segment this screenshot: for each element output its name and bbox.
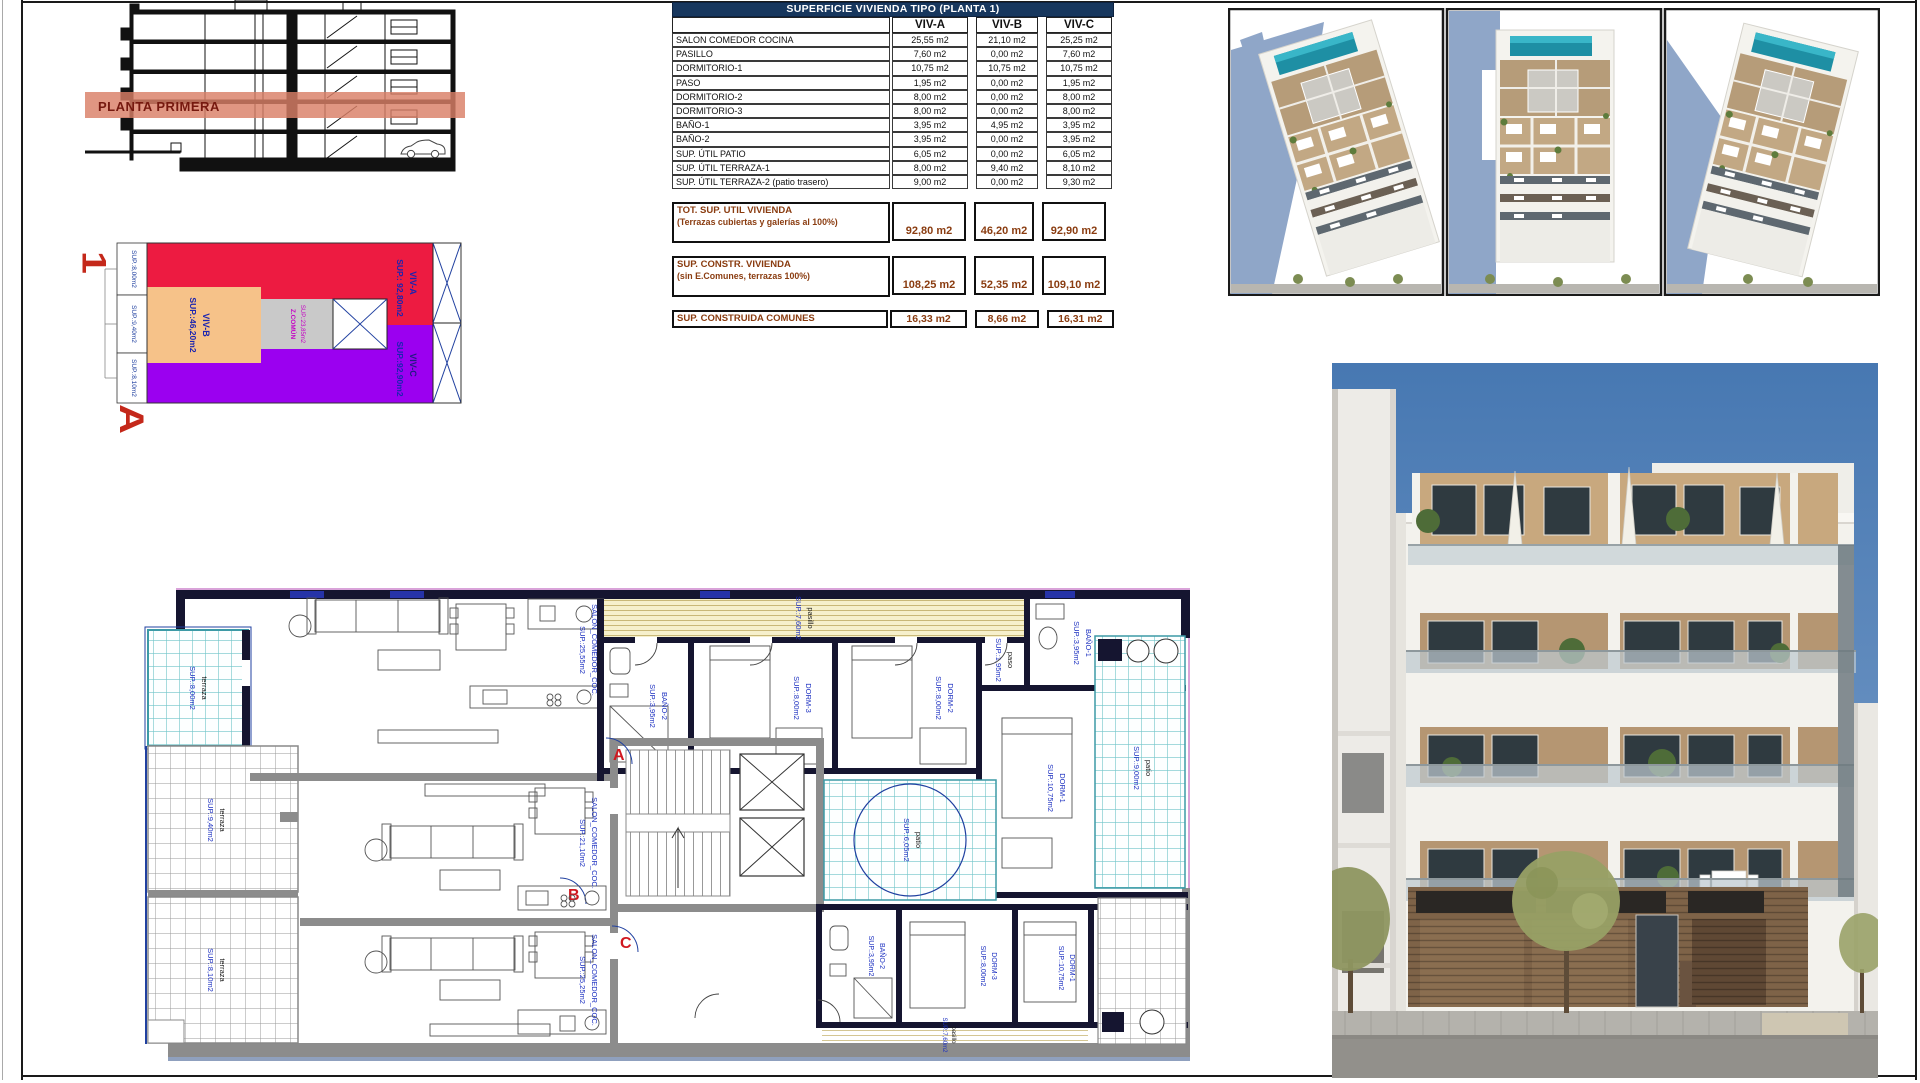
- row-label: SUP. ÚTIL TERRAZA-2 (patio trasero): [672, 175, 890, 189]
- total-constr-b: 52,35 m2: [974, 256, 1034, 295]
- pasillo-c-name: pasillo: [950, 1026, 956, 1044]
- aerial-panel-1: [1229, 9, 1443, 295]
- aerial-panel-3: [1665, 9, 1879, 295]
- total-util-c: 92,90 m2: [1042, 202, 1106, 241]
- dorm3-c: DORM-3 SUP.:8,00m2: [910, 922, 997, 1008]
- total-util-row: TOT. SUP. UTIL VIVIENDA (Terrazas cubier…: [672, 202, 1114, 243]
- salon-c-sup: SUP.:25,25m2: [578, 956, 587, 1004]
- total-constr-c: 109,10 m2: [1042, 256, 1106, 295]
- row-value-a: 8,00 m2: [892, 90, 968, 104]
- bano2-c-sup: SUP.:3,95m2: [867, 936, 874, 977]
- total-util-label-sub: (Terrazas cubiertas y galerías al 100%): [677, 217, 888, 228]
- dorm3-a-sup: SUP.:8,00m2: [792, 676, 801, 720]
- bano1-a-name: BAÑO-1: [1084, 629, 1093, 657]
- table-row: PASO 1,95 m2 0,00 m2 1,95 m2: [672, 76, 1114, 90]
- total-constr-label: SUP. CONSTR. VIVIENDA (sin E.Comunes, te…: [672, 256, 890, 297]
- row-value-b: 0,00 m2: [976, 76, 1038, 90]
- patio-trasero-name: patio: [1144, 760, 1153, 776]
- sheet-outer-border: [2, 0, 3, 1080]
- table-row: DORMITORIO-3 8,00 m2 0,00 m2 8,00 m2: [672, 104, 1114, 118]
- dorm2-a-sup: SUP.:8,00m2: [934, 676, 943, 720]
- label-viv-c-name: VIV-C: [408, 353, 418, 377]
- terraza-b-name: terraza: [218, 808, 227, 832]
- area-table: SUPERFICIE VIVIENDA TIPO (PLANTA 1) VIV-…: [672, 2, 1114, 328]
- total-util-label: TOT. SUP. UTIL VIVIENDA (Terrazas cubier…: [672, 202, 890, 243]
- dorm3-a: DORM-3 SUP.:8,00m2: [710, 646, 822, 764]
- row-value-c: 8,00 m2: [1046, 104, 1112, 118]
- patio-a-sup: SUP.:6,05m2: [902, 818, 911, 862]
- row-value-c: 6,05 m2: [1046, 147, 1112, 161]
- row-label: PASO: [672, 76, 890, 90]
- edge-label-terraza-c: SUP.:8,10m2: [130, 359, 137, 397]
- bano2-c: BAÑO-2 SUP.:3,95m2: [830, 926, 892, 1018]
- aerial-renders-svg: [1228, 8, 1880, 296]
- sheet-border-left: [21, 0, 23, 1080]
- row-value-b: 0,00 m2: [976, 132, 1038, 146]
- planta-primera-label: PLANTA PRIMERA: [98, 99, 220, 114]
- table-row: SUP. ÚTIL TERRAZA-1 8,00 m2 9,40 m2 8,10…: [672, 161, 1114, 175]
- table-row: DORMITORIO-1 10,75 m2 10,75 m2 10,75 m2: [672, 61, 1114, 75]
- label-viv-a-sup: SUP.: 92,80m2: [395, 259, 405, 317]
- balcony-floor-2: [1406, 727, 1856, 787]
- aerial-renders: [1228, 8, 1880, 296]
- terraza-b-sup: SUP.:9,40m2: [206, 798, 215, 842]
- row-value-c: 3,95 m2: [1046, 132, 1112, 146]
- label-z-comun-name: Z.COMÚN: [289, 309, 298, 340]
- row-value-a: 8,00 m2: [892, 104, 968, 118]
- row-value-a: 9,00 m2: [892, 175, 968, 189]
- row-label: SUP. ÚTIL PATIO: [672, 147, 890, 161]
- dorm1-c-name: DORM-1: [1068, 954, 1075, 982]
- dorm3-c-sup: SUP.:8,00m2: [979, 946, 986, 987]
- total-constr-label-sub: (sin E.Comunes, terrazas 100%): [677, 271, 888, 282]
- row-value-b: 0,00 m2: [976, 175, 1038, 189]
- terraza-a: terraza SUP.:8,00m2: [145, 627, 251, 749]
- aerial-panel-2: [1447, 9, 1661, 295]
- patio-a-name: patio: [914, 832, 923, 848]
- floor-plan: terraza SUP.:8,00m2 terraza SUP.:9,40m2 …: [140, 588, 1198, 1074]
- row-value-a: 8,00 m2: [892, 161, 968, 175]
- common-core: [610, 738, 824, 1050]
- salon-c: SALON_COMEDOR_COC. SUP.:25,25m2: [365, 932, 606, 1036]
- row-label: SALON COMEDOR COCINA: [672, 33, 890, 47]
- label-viv-b-name: VIV-B: [201, 313, 211, 337]
- table-header-row: VIV-A VIV-B VIV-C: [672, 17, 1114, 33]
- row-value-c: 9,30 m2: [1046, 175, 1112, 189]
- col-viv-b: VIV-B: [976, 17, 1038, 33]
- table-row: DORMITORIO-2 8,00 m2 0,00 m2 8,00 m2: [672, 90, 1114, 104]
- row-value-c: 8,10 m2: [1046, 161, 1112, 175]
- patio-a: patio SUP.:6,05m2: [824, 780, 996, 900]
- dorm1-a: DORM-1 SUP.:10,75m2: [1002, 718, 1072, 868]
- row-value-b: 0,00 m2: [976, 47, 1038, 61]
- label-viv-b-sup: SUP.:46,20m2: [188, 297, 198, 352]
- dorm3-c-name: DORM-3: [990, 952, 997, 980]
- dorm1-c: DORM-1 SUP.:10,75m2: [1024, 922, 1076, 1002]
- table-row: BAÑO-1 3,95 m2 4,95 m2 3,95 m2: [672, 118, 1114, 132]
- bano1-a: BAÑO-1 SUP.:3,95m2: [1036, 604, 1093, 665]
- row-value-c: 25,25 m2: [1046, 33, 1112, 47]
- paso-a-name: paso: [1006, 652, 1015, 668]
- terraza-b: terraza SUP.:9,40m2: [148, 746, 298, 892]
- sheet-border-right: [1915, 0, 1917, 1080]
- salon-a-sup: SUP.:25,55m2: [578, 626, 587, 674]
- row-value-a: 25,55 m2: [892, 33, 968, 47]
- badge-a: A: [613, 747, 625, 764]
- row-value-b: 9,40 m2: [976, 161, 1038, 175]
- terraza-c-name: terraza: [218, 958, 227, 982]
- dorm2-a-name: DORM-2: [946, 683, 955, 713]
- main-building: [1396, 463, 1856, 1043]
- table-row: SUP. ÚTIL TERRAZA-2 (patio trasero) 9,00…: [672, 175, 1114, 189]
- salon-b-name: SALON_COMEDOR_COC.: [590, 797, 599, 889]
- key-plan-svg: SUP.:8,00m2 SUP.:9,40m2 SUP.:8,10m2 VIV-…: [75, 233, 490, 425]
- row-value-a: 7,60 m2: [892, 47, 968, 61]
- row-value-a: 1,95 m2: [892, 76, 968, 90]
- table-row: PASILLO 7,60 m2 0,00 m2 7,60 m2: [672, 47, 1114, 61]
- terraza-c-sup: SUP.:8,10m2: [206, 948, 215, 992]
- col-viv-a: VIV-A: [892, 17, 968, 33]
- patio-trasero: patio SUP.:9,00m2: [1095, 636, 1185, 888]
- total-constr-label-main: SUP. CONSTR. VIVIENDA: [677, 259, 888, 271]
- elevation-render-svg: [1332, 363, 1878, 1078]
- row-label: DORMITORIO-3: [672, 104, 890, 118]
- label-viv-a-name: VIV-A: [408, 271, 418, 295]
- dorm1-a-sup: SUP.:10,75m2: [1046, 764, 1055, 812]
- dorm1-a-name: DORM-1: [1058, 773, 1067, 803]
- table-row: BAÑO-2 3,95 m2 0,00 m2 3,95 m2: [672, 132, 1114, 146]
- salon-c-name: SALON_COMEDOR_COC.: [590, 934, 599, 1026]
- floor-plan-svg: terraza SUP.:8,00m2 terraza SUP.:9,40m2 …: [140, 588, 1198, 1074]
- dorm3-a-name: DORM-3: [804, 683, 813, 713]
- section-drawing-svg: PLANTA PRIMERA: [85, 0, 465, 178]
- paso-a: paso SUP.:1,95m2: [994, 638, 1015, 682]
- balcony-floor-3: [1406, 613, 1856, 673]
- col-viv-c: VIV-C: [1046, 17, 1112, 33]
- street: [1332, 1011, 1878, 1078]
- row-value-b: 0,00 m2: [976, 104, 1038, 118]
- edge-label-terraza-b: SUP.:9,40m2: [130, 305, 137, 343]
- dorm2-a: DORM-2 SUP.:8,00m2: [852, 646, 966, 764]
- table-corner-cell: [672, 17, 890, 33]
- total-constr-row: SUP. CONSTR. VIVIENDA (sin E.Comunes, te…: [672, 256, 1114, 297]
- edge-label-terraza-a: SUP.:8,00m2: [130, 250, 137, 288]
- row-value-b: 0,00 m2: [976, 90, 1038, 104]
- total-comunes-a: 16,33 m2: [890, 310, 967, 328]
- row-value-b: 10,75 m2: [976, 61, 1038, 75]
- pasillo-a-sup: SUP.:7,60m2: [794, 596, 803, 640]
- bano2-a-sup: SUP.:3,95m2: [648, 684, 657, 728]
- row-value-a: 3,95 m2: [892, 132, 968, 146]
- row-value-a: 10,75 m2: [892, 61, 968, 75]
- salon-b-sup: SUP.:21,10m2: [578, 819, 587, 867]
- row-label: DORMITORIO-2: [672, 90, 890, 104]
- dorm1-c-sup: SUP.:10,75m2: [1057, 946, 1064, 991]
- section-drawing: PLANTA PRIMERA: [85, 0, 465, 178]
- table-row: SUP. ÚTIL PATIO 6,05 m2 0,00 m2 6,05 m2: [672, 147, 1114, 161]
- row-label: PASILLO: [672, 47, 890, 61]
- table-body: SALON COMEDOR COCINA 25,55 m2 21,10 m2 2…: [672, 33, 1114, 189]
- table-row: SALON COMEDOR COCINA 25,55 m2 21,10 m2 2…: [672, 33, 1114, 47]
- row-value-c: 10,75 m2: [1046, 61, 1112, 75]
- label-z-comun-sup: SUP.:23,85m2: [299, 305, 305, 344]
- entrance-door: [1636, 915, 1678, 1007]
- terraza-c: terraza SUP.:8,10m2: [148, 897, 298, 1043]
- terraza-a-sup: SUP.:8,00m2: [188, 666, 197, 710]
- total-util-b: 46,20 m2: [974, 202, 1034, 241]
- row-label: BAÑO-2: [672, 132, 890, 146]
- row-value-c: 7,60 m2: [1046, 47, 1112, 61]
- patio-trasero-sup: SUP.:9,00m2: [1132, 746, 1141, 790]
- row-value-c: 1,95 m2: [1046, 76, 1112, 90]
- row-value-b: 21,10 m2: [976, 33, 1038, 47]
- badge-c: C: [620, 935, 632, 952]
- total-comunes-c: 16,31 m2: [1047, 310, 1114, 328]
- total-util-label-main: TOT. SUP. UTIL VIVIENDA: [677, 205, 888, 217]
- bano2-c-name: BAÑO-2: [878, 943, 887, 969]
- pasillo-a-name: pasillo: [806, 607, 815, 628]
- plan-sheet: { "section": { "band_label": "PLANTA PRI…: [0, 0, 1920, 1080]
- total-constr-a: 108,25 m2: [892, 256, 966, 295]
- bano2-a-name: BAÑO-2: [660, 692, 669, 720]
- zone-z-comun: [261, 299, 333, 349]
- row-label: BAÑO-1: [672, 118, 890, 132]
- row-value-a: 6,05 m2: [892, 147, 968, 161]
- total-comunes-label: SUP. CONSTRUIDA COMUNES: [672, 310, 888, 328]
- total-comunes-b: 8,66 m2: [975, 310, 1038, 328]
- label-viv-c-sup: SUP.:92,90m2: [395, 341, 405, 396]
- key-plan: PLANTA 1 SUP.:8,00m2 SUP.:9,40m2 SUP.:8,…: [75, 233, 490, 425]
- total-comunes-row: SUP. CONSTRUIDA COMUNES 16,33 m2 8,66 m2…: [672, 310, 1114, 328]
- bano1-a-sup: SUP.:3,95m2: [1072, 621, 1081, 665]
- car-icon: [401, 140, 445, 158]
- salon-a: SALON_COMEDOR_COC. SUP.:25,55m2: [289, 598, 604, 743]
- pasillo-c-sup: SUP.:7,60m2: [941, 1018, 947, 1054]
- neighbor-building-left: [1332, 389, 1396, 1078]
- row-value-a: 3,95 m2: [892, 118, 968, 132]
- elevation-render: [1332, 363, 1878, 1078]
- table-title: SUPERFICIE VIVIENDA TIPO (PLANTA 1): [672, 2, 1114, 17]
- pasillo-a: pasillo SUP.:7,60m2: [604, 596, 1024, 643]
- row-value-b: 0,00 m2: [976, 147, 1038, 161]
- row-label: SUP. ÚTIL TERRAZA-1: [672, 161, 890, 175]
- total-util-a: 92,80 m2: [892, 202, 966, 241]
- terraza-bottom-right: [1098, 898, 1186, 1044]
- row-label: DORMITORIO-1: [672, 61, 890, 75]
- row-value-c: 3,95 m2: [1046, 118, 1112, 132]
- row-value-c: 8,00 m2: [1046, 90, 1112, 104]
- terraza-a-name: terraza: [200, 676, 209, 700]
- row-value-b: 4,95 m2: [976, 118, 1038, 132]
